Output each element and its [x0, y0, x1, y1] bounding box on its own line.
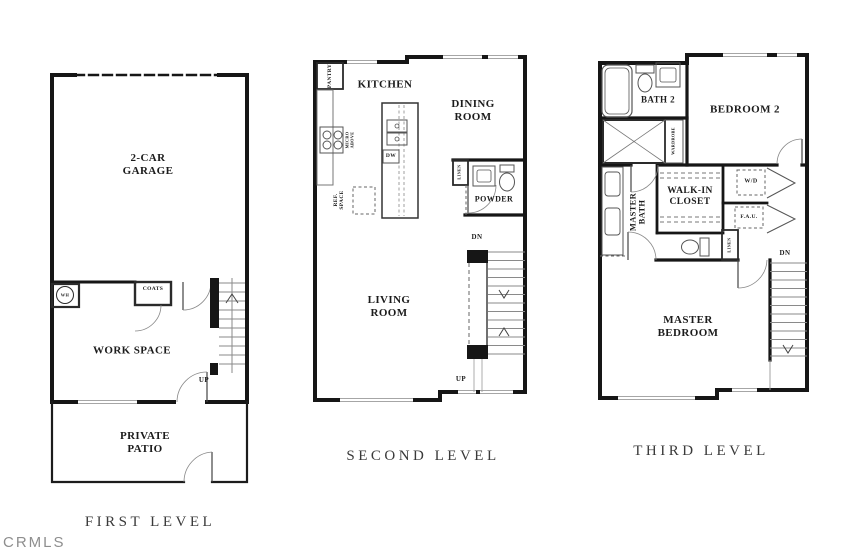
- crmls-watermark: CRMLS: [3, 534, 66, 551]
- linen-label-second: LINEN: [458, 164, 463, 179]
- dn-label-third: DN: [780, 249, 791, 257]
- master-bath-label: MASTER BATH: [629, 193, 648, 231]
- toilet-icon: [636, 65, 654, 73]
- first-level-stairs: [210, 278, 245, 375]
- garage-interior-door: [183, 282, 211, 310]
- bathtub-icon: [602, 65, 632, 117]
- master-bedroom-label: MASTER BEDROOM: [658, 314, 719, 340]
- stairs-down-arrow-icon: [783, 345, 793, 353]
- closet-door: [631, 165, 658, 192]
- second-level-drawing: [308, 48, 533, 413]
- master-bedroom-door: [738, 260, 767, 288]
- vanity-sink-icon: [656, 63, 680, 87]
- master-bath-door: [600, 232, 656, 260]
- fau-label: F.A.U.: [740, 214, 757, 220]
- master-bath-fixtures: [602, 167, 738, 260]
- toilet-icon: [500, 165, 514, 172]
- floor-plan-third-level: BATH 2 BEDROOM 2 WARDROBE MASTER BATH WA…: [588, 45, 823, 410]
- ref-space-label: REF. SPACE: [333, 190, 345, 209]
- refrigerator-space: [353, 187, 375, 214]
- second-level-title: SECOND LEVEL: [346, 448, 499, 466]
- micro-above-label: MICRO ABOVE: [345, 132, 354, 149]
- bedroom2-door: [777, 139, 802, 164]
- patio-door: [184, 452, 212, 482]
- floor-plan-second-level: KITCHEN DINING ROOM LIVING ROOM POWDER P…: [308, 48, 533, 413]
- third-level-drawing: [588, 45, 823, 410]
- closet-bifold-door: [767, 168, 795, 198]
- floor-plan-sheet: { "watermark": "CRMLS", "first": { "titl…: [0, 0, 851, 560]
- coats-label: COATS: [143, 286, 164, 292]
- powder-label: POWDER: [475, 194, 513, 203]
- bath2-label: BATH 2: [641, 95, 675, 106]
- third-level-stairs: [770, 263, 807, 390]
- up-label-first: UP: [199, 376, 209, 384]
- up-label-second: UP: [456, 375, 466, 383]
- work-space-label: WORK SPACE: [93, 345, 171, 358]
- toilet-icon: [700, 238, 709, 256]
- sink-icon: [605, 208, 620, 235]
- kitchen-label: KITCHEN: [358, 79, 413, 92]
- linen-label-third: LINEN: [728, 237, 733, 252]
- wardrobe-label: WARDROBE: [672, 127, 677, 155]
- third-level-title: THIRD LEVEL: [633, 443, 769, 461]
- wd-label: W/D: [744, 178, 757, 185]
- kitchen-counter: [317, 90, 375, 214]
- coats-door-arc: [135, 305, 161, 331]
- closet-bifold-door: [767, 205, 795, 233]
- dw-label: DW: [386, 153, 396, 159]
- private-patio-label: PRIVATE PATIO: [120, 430, 170, 456]
- pantry-label: PANTRY: [327, 64, 333, 88]
- shower-x-icon: [603, 120, 665, 163]
- kitchen-island: [382, 103, 418, 218]
- second-level-stairs: [467, 250, 525, 392]
- sink-icon: [605, 172, 620, 196]
- bath2-fixtures: [602, 63, 680, 117]
- wh-label: WH: [61, 292, 69, 297]
- first-level-title: FIRST LEVEL: [85, 514, 215, 532]
- walk-in-closet-label: WALK-IN CLOSET: [667, 186, 713, 208]
- dining-room-label: DINING ROOM: [451, 98, 494, 124]
- dn-label-second: DN: [472, 233, 483, 241]
- workspace-window: [78, 401, 137, 404]
- stairs-up-arrow-icon: [499, 328, 509, 336]
- living-room-label: LIVING ROOM: [368, 294, 411, 320]
- floor-plan-first-level: 2-CAR GARAGE WORK SPACE PRIVATE PATIO CO…: [44, 60, 259, 522]
- bedroom2-label: BEDROOM 2: [710, 104, 780, 117]
- vanity-sink-icon: [473, 166, 495, 186]
- garage-label: 2-CAR GARAGE: [123, 152, 174, 178]
